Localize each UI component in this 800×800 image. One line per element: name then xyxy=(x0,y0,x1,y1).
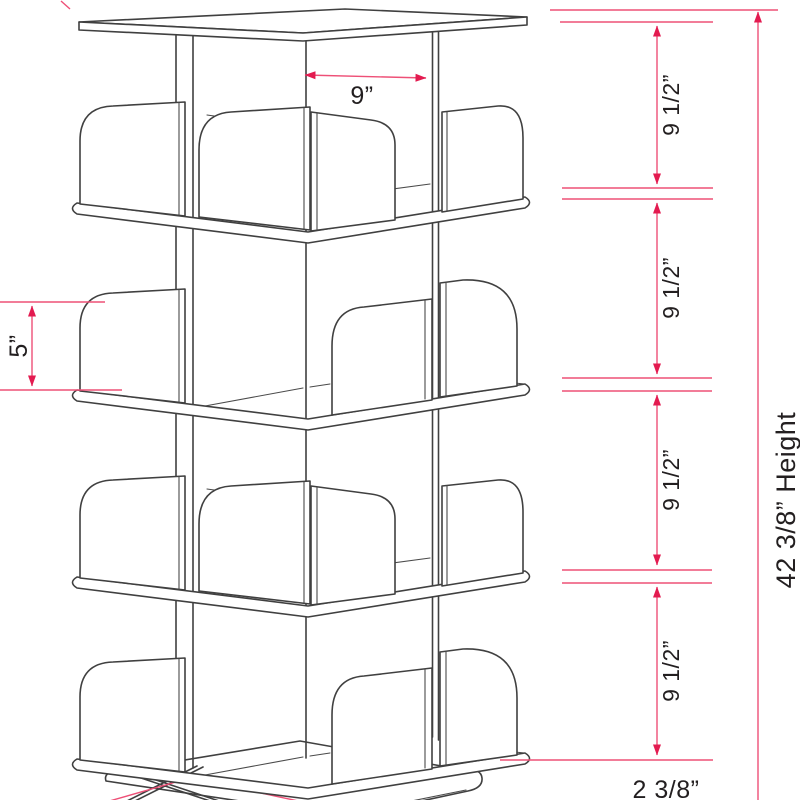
dim-tier-2-spacing: 9 1/2” xyxy=(657,203,684,374)
tier-2 xyxy=(73,280,530,430)
cutoff-arrow-tick xyxy=(61,1,70,9)
tier-1 xyxy=(73,102,530,243)
dim-label-base-height: 2 3/8” xyxy=(633,776,700,800)
dim-tier-1-spacing: 9 1/2” xyxy=(657,26,684,184)
dim-label-tier-3-spacing: 9 1/2” xyxy=(658,449,684,511)
dimension-diagram-page: 9” 5” 9 1/2” 9 1/2” 9 1/2” xyxy=(0,0,800,800)
dim-label-tier-2-spacing: 9 1/2” xyxy=(658,257,684,319)
tier-3 xyxy=(73,476,530,617)
dim-shelf-width: 9” xyxy=(305,75,426,110)
dim-label-tier-1-spacing: 9 1/2” xyxy=(658,74,684,136)
dim-label-shelf-width: 9” xyxy=(350,82,373,110)
bookshelf-line-art xyxy=(73,9,530,800)
dim-label-divider-height: 5” xyxy=(5,334,33,357)
dimension-diagram-svg: 9” 5” 9 1/2” 9 1/2” 9 1/2” xyxy=(0,0,800,800)
dim-overall-height: 42 3/8” Height xyxy=(758,12,800,800)
dim-label-tier-4-spacing: 9 1/2” xyxy=(658,640,684,702)
top-panel xyxy=(79,9,527,41)
dim-tier-4-spacing: 9 1/2” xyxy=(657,587,684,755)
dim-label-overall-height: 42 3/8” Height xyxy=(771,412,800,589)
dim-tier-3-spacing: 9 1/2” xyxy=(657,395,684,565)
